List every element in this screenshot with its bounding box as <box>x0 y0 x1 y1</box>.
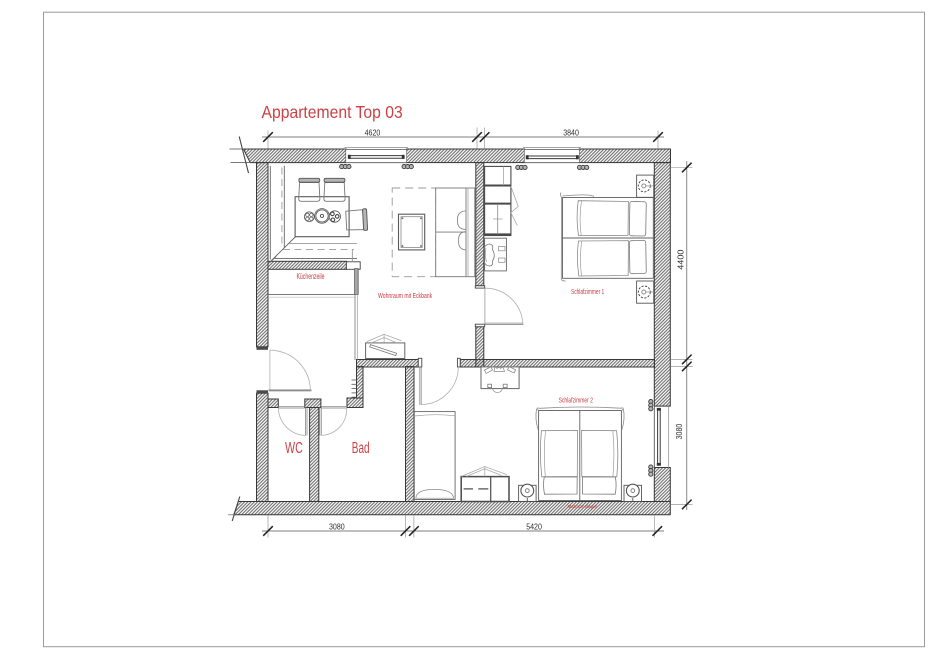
svg-text:3080: 3080 <box>329 522 345 532</box>
svg-text:Matratzenlager: Matratzenlager <box>568 504 598 509</box>
svg-text:Wohnraum mit Eckbank: Wohnraum mit Eckbank <box>378 291 432 300</box>
svg-text:WC: WC <box>285 440 303 457</box>
svg-text:5420: 5420 <box>526 522 542 532</box>
svg-text:Bad: Bad <box>352 440 370 457</box>
svg-text:Küchenzeile: Küchenzeile <box>297 272 325 281</box>
svg-text:4620: 4620 <box>365 127 381 137</box>
svg-text:3840: 3840 <box>563 127 579 137</box>
svg-text:4400: 4400 <box>676 249 686 269</box>
svg-text:Schlafzimmer 1: Schlafzimmer 1 <box>571 287 604 296</box>
svg-text:Schlafzimmer 2: Schlafzimmer 2 <box>559 396 593 405</box>
svg-text:3080: 3080 <box>674 424 684 440</box>
svg-text:Appartement Top 03: Appartement Top 03 <box>262 102 403 122</box>
